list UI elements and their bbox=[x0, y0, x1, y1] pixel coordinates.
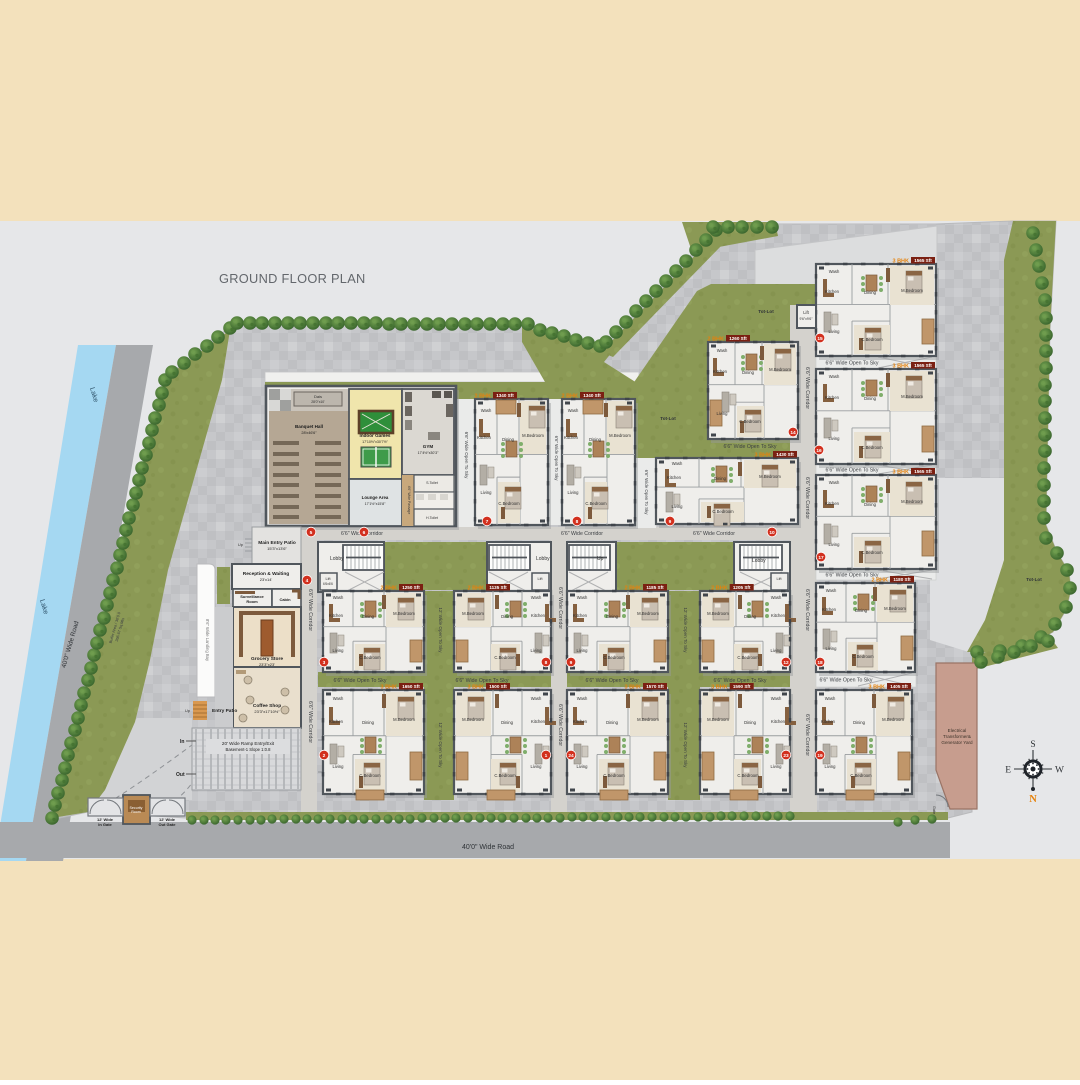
svg-text:Dining: Dining bbox=[864, 290, 877, 295]
svg-text:Living: Living bbox=[333, 648, 345, 653]
svg-text:Kitchen: Kitchen bbox=[667, 475, 682, 480]
svg-text:Living: Living bbox=[771, 648, 783, 653]
svg-text:Kitchen: Kitchen bbox=[821, 719, 836, 724]
svg-text:Dining: Dining bbox=[855, 608, 868, 613]
svg-text:1185 Sft: 1185 Sft bbox=[646, 585, 664, 590]
svg-text:Wash: Wash bbox=[672, 461, 683, 466]
svg-text:C.Bedroom: C.Bedroom bbox=[737, 773, 759, 778]
svg-text:6'6" Wide Open To Sky: 6'6" Wide Open To Sky bbox=[826, 361, 879, 367]
svg-text:C.Bedroom: C.Bedroom bbox=[850, 773, 872, 778]
svg-text:1340 Sft: 1340 Sft bbox=[496, 393, 514, 398]
svg-text:4: 4 bbox=[306, 578, 309, 584]
svg-text:6'6" Wide Corridor: 6'6" Wide Corridor bbox=[557, 704, 563, 746]
svg-text:1180 Sft: 1180 Sft bbox=[893, 577, 911, 582]
svg-text:M.Bedroom: M.Bedroom bbox=[609, 433, 631, 438]
svg-text:Kitchen: Kitchen bbox=[771, 719, 786, 724]
svg-text:3 BHK: 3 BHK bbox=[754, 453, 771, 459]
svg-text:Lounge Area: Lounge Area bbox=[362, 495, 389, 500]
svg-text:M.Bedroom: M.Bedroom bbox=[882, 717, 904, 722]
svg-text:S: S bbox=[1030, 740, 1035, 750]
svg-text:1565 Sft: 1565 Sft bbox=[914, 363, 932, 368]
svg-text:Kitchen: Kitchen bbox=[329, 719, 344, 724]
svg-text:6'6" Wide Open To Sky: 6'6" Wide Open To Sky bbox=[586, 678, 639, 684]
svg-text:Living: Living bbox=[829, 542, 841, 547]
svg-text:Kitchen: Kitchen bbox=[771, 613, 786, 618]
svg-text:Kitchen: Kitchen bbox=[825, 501, 840, 506]
svg-text:1590 Sft: 1590 Sft bbox=[733, 684, 751, 689]
svg-text:Kitchen: Kitchen bbox=[531, 613, 546, 618]
svg-text:Dining: Dining bbox=[589, 437, 602, 442]
svg-text:Dining: Dining bbox=[864, 396, 877, 401]
svg-text:Living: Living bbox=[568, 490, 580, 495]
svg-text:Kitchen: Kitchen bbox=[477, 435, 492, 440]
svg-text:S.Toilet: S.Toilet bbox=[426, 481, 438, 485]
svg-text:Living: Living bbox=[829, 436, 841, 441]
svg-text:Wash: Wash bbox=[771, 595, 782, 600]
svg-text:1570 Sft: 1570 Sft bbox=[646, 684, 664, 689]
svg-text:Banquet Hall: Banquet Hall bbox=[295, 424, 323, 429]
svg-text:8: 8 bbox=[545, 660, 548, 666]
svg-text:Lift: Lift bbox=[803, 310, 809, 315]
svg-text:Tot-Lot: Tot-Lot bbox=[1026, 577, 1042, 582]
svg-text:6'6" Wide Open To Sky: 6'6" Wide Open To Sky bbox=[464, 432, 469, 480]
svg-text:15'3"x13'6": 15'3"x13'6" bbox=[267, 546, 287, 551]
svg-text:M.Bedroom: M.Bedroom bbox=[901, 288, 923, 293]
svg-text:Kitchen: Kitchen bbox=[564, 435, 579, 440]
svg-text:18: 18 bbox=[817, 660, 823, 666]
svg-text:Kitchen: Kitchen bbox=[825, 289, 840, 294]
svg-text:In Gate: In Gate bbox=[98, 822, 112, 827]
svg-text:Generator Yard: Generator Yard bbox=[941, 740, 973, 745]
svg-text:Entry Patio: Entry Patio bbox=[212, 708, 237, 714]
svg-text:6'6x6'6: 6'6x6'6 bbox=[323, 582, 333, 586]
svg-text:M.Bedroom: M.Bedroom bbox=[393, 611, 415, 616]
svg-text:Up: Up bbox=[238, 542, 244, 547]
svg-text:Indoor Games: Indoor Games bbox=[360, 433, 391, 438]
svg-text:8: 8 bbox=[576, 519, 579, 525]
svg-text:C.Bedroom: C.Bedroom bbox=[494, 773, 516, 778]
svg-text:Kitchen: Kitchen bbox=[329, 613, 344, 618]
svg-text:3 BHK: 3 BHK bbox=[380, 685, 397, 691]
svg-text:1650 Sft: 1650 Sft bbox=[402, 684, 420, 689]
svg-text:1405 Sft: 1405 Sft bbox=[890, 684, 908, 689]
svg-text:3 BHK: 3 BHK bbox=[868, 685, 885, 691]
svg-text:Living: Living bbox=[672, 504, 684, 509]
svg-text:M.Bedroom: M.Bedroom bbox=[769, 367, 791, 372]
svg-text:2 BHK: 2 BHK bbox=[467, 586, 484, 592]
svg-text:3 BHK: 3 BHK bbox=[892, 259, 909, 265]
svg-text:6'6" Wide Corridor: 6'6" Wide Corridor bbox=[804, 477, 810, 519]
svg-text:Kitchen: Kitchen bbox=[573, 613, 588, 618]
svg-text:Cabin: Cabin bbox=[279, 597, 291, 602]
svg-text:6'6" Wide Open To Sky: 6'6" Wide Open To Sky bbox=[724, 444, 777, 450]
svg-text:C.Bedroom: C.Bedroom bbox=[494, 655, 516, 660]
svg-text:Living: Living bbox=[481, 490, 493, 495]
svg-text:12' Wide Open To Sky: 12' Wide Open To Sky bbox=[438, 607, 443, 653]
svg-text:Out Gate: Out Gate bbox=[159, 822, 177, 827]
svg-text:Dining: Dining bbox=[606, 720, 619, 725]
svg-text:C.Bedroom: C.Bedroom bbox=[861, 550, 883, 555]
svg-text:17'4½"x30'3": 17'4½"x30'3" bbox=[418, 451, 439, 455]
svg-text:Kitchen: Kitchen bbox=[573, 719, 588, 724]
svg-text:Transformer&: Transformer& bbox=[943, 734, 971, 739]
svg-text:23'3"x17'10½": 23'3"x17'10½" bbox=[254, 709, 280, 714]
svg-text:M.Bedroom: M.Bedroom bbox=[707, 611, 729, 616]
svg-text:1430 Sft: 1430 Sft bbox=[776, 452, 794, 457]
svg-text:14: 14 bbox=[790, 430, 796, 436]
svg-text:Dining: Dining bbox=[362, 720, 375, 725]
svg-text:16: 16 bbox=[816, 448, 822, 454]
svg-text:C.Bedroom: C.Bedroom bbox=[737, 655, 759, 660]
svg-text:Wash: Wash bbox=[577, 696, 588, 701]
svg-text:20' Wide Ramp Entry/Exit: 20' Wide Ramp Entry/Exit bbox=[222, 741, 275, 746]
svg-text:GROUND FLOOR PLAN: GROUND FLOOR PLAN bbox=[219, 271, 366, 286]
svg-text:Dining: Dining bbox=[742, 370, 755, 375]
svg-text:C.Bedroom: C.Bedroom bbox=[359, 655, 381, 660]
svg-text:8'6" Wide Landing Bay: 8'6" Wide Landing Bay bbox=[205, 619, 210, 662]
svg-text:1260 Sft: 1260 Sft bbox=[729, 336, 747, 341]
svg-text:Living: Living bbox=[577, 764, 589, 769]
svg-text:3: 3 bbox=[323, 660, 326, 666]
svg-text:Dining: Dining bbox=[501, 614, 514, 619]
svg-text:Up: Up bbox=[597, 556, 604, 562]
svg-text:Living: Living bbox=[825, 764, 837, 769]
svg-text:Dining: Dining bbox=[502, 437, 515, 442]
svg-text:M.Bedroom: M.Bedroom bbox=[901, 499, 923, 504]
svg-text:12' Wide Open To Sky: 12' Wide Open To Sky bbox=[683, 722, 688, 768]
svg-text:6'6" Wide Corridor: 6'6" Wide Corridor bbox=[804, 714, 810, 756]
svg-text:Dining: Dining bbox=[501, 720, 514, 725]
svg-text:6'6" Wide Corridor: 6'6" Wide Corridor bbox=[557, 587, 563, 629]
svg-text:Dining: Dining bbox=[714, 476, 727, 481]
svg-text:M.Bedroom: M.Bedroom bbox=[759, 474, 781, 479]
svg-text:Gate: Gate bbox=[932, 806, 936, 814]
svg-text:N: N bbox=[1029, 794, 1037, 805]
svg-text:Lobby: Lobby bbox=[330, 556, 344, 562]
svg-text:Room: Room bbox=[246, 599, 258, 604]
svg-text:2 BHK: 2 BHK bbox=[380, 586, 397, 592]
svg-text:In: In bbox=[180, 739, 184, 745]
svg-text:W: W bbox=[1055, 766, 1064, 776]
svg-text:C.Bedroom: C.Bedroom bbox=[585, 501, 607, 506]
svg-text:Basement-1 Slope 1:0.8: Basement-1 Slope 1:0.8 bbox=[226, 747, 272, 752]
svg-text:Dining: Dining bbox=[864, 502, 877, 507]
svg-text:M.Bedroom: M.Bedroom bbox=[637, 611, 659, 616]
svg-text:2 BHK: 2 BHK bbox=[561, 394, 578, 400]
svg-text:15: 15 bbox=[817, 336, 823, 342]
svg-text:GYM: GYM bbox=[423, 444, 434, 449]
svg-text:2 BHK: 2 BHK bbox=[711, 586, 728, 592]
svg-text:Dining: Dining bbox=[362, 614, 375, 619]
svg-text:Wash: Wash bbox=[531, 696, 542, 701]
svg-text:1205 Sft: 1205 Sft bbox=[733, 585, 751, 590]
svg-text:6'6" Wide Corridor: 6'6" Wide Corridor bbox=[307, 589, 313, 631]
svg-text:Kitchen: Kitchen bbox=[822, 607, 837, 612]
svg-text:10: 10 bbox=[769, 530, 775, 536]
svg-text:2 BHK: 2 BHK bbox=[871, 578, 888, 584]
svg-text:Dining: Dining bbox=[853, 720, 866, 725]
svg-text:C.Bedroom: C.Bedroom bbox=[861, 337, 883, 342]
svg-text:M.Bedroom: M.Bedroom bbox=[462, 611, 484, 616]
svg-text:M.Bedroom: M.Bedroom bbox=[901, 394, 923, 399]
svg-text:28'x46'6": 28'x46'6" bbox=[301, 431, 317, 435]
svg-text:Dining: Dining bbox=[744, 614, 757, 619]
svg-text:Electrical: Electrical bbox=[948, 728, 967, 733]
svg-text:Kitchen: Kitchen bbox=[531, 719, 546, 724]
svg-text:1565 Sft: 1565 Sft bbox=[914, 469, 932, 474]
svg-text:Wash: Wash bbox=[829, 374, 840, 379]
svg-text:Tot-Lot: Tot-Lot bbox=[758, 309, 774, 314]
svg-text:Wash: Wash bbox=[826, 588, 837, 593]
svg-text:Living: Living bbox=[771, 764, 783, 769]
svg-text:12: 12 bbox=[783, 660, 789, 666]
svg-text:Up: Up bbox=[185, 708, 191, 713]
svg-text:Room: Room bbox=[131, 810, 141, 814]
svg-text:Dining: Dining bbox=[744, 720, 757, 725]
svg-text:24: 24 bbox=[568, 753, 574, 759]
svg-text:Tot-Lot: Tot-Lot bbox=[660, 416, 676, 421]
svg-text:Wash: Wash bbox=[333, 696, 344, 701]
svg-text:Living: Living bbox=[577, 648, 589, 653]
svg-text:12' Wide Open To Sky: 12' Wide Open To Sky bbox=[438, 722, 443, 768]
svg-text:C.Bedroom: C.Bedroom bbox=[861, 445, 883, 450]
svg-text:Wash: Wash bbox=[577, 595, 588, 600]
svg-text:6'6" Wide Corridor: 6'6" Wide Corridor bbox=[561, 531, 603, 537]
svg-text:6'6" Wide Corridor: 6'6" Wide Corridor bbox=[804, 367, 810, 409]
svg-text:3 BHK: 3 BHK bbox=[892, 470, 909, 476]
svg-text:19: 19 bbox=[817, 753, 823, 759]
svg-text:Living: Living bbox=[531, 648, 543, 653]
svg-text:6'6" Wide Open To Sky: 6'6" Wide Open To Sky bbox=[554, 436, 559, 482]
svg-text:Kitchen: Kitchen bbox=[713, 369, 728, 374]
svg-text:6'6" Wide Open To Sky: 6'6" Wide Open To Sky bbox=[644, 470, 649, 516]
svg-text:17: 17 bbox=[818, 555, 824, 561]
svg-text:9: 9 bbox=[669, 519, 672, 525]
svg-text:C.Bedroom: C.Bedroom bbox=[739, 419, 761, 424]
svg-text:6'6" Wide Corridor: 6'6" Wide Corridor bbox=[693, 531, 735, 537]
svg-text:M.Bedroom: M.Bedroom bbox=[884, 606, 906, 611]
svg-text:Dining: Dining bbox=[606, 614, 619, 619]
svg-text:Wash: Wash bbox=[829, 269, 840, 274]
svg-text:Living: Living bbox=[531, 764, 543, 769]
svg-text:3 BHK: 3 BHK bbox=[467, 685, 484, 691]
svg-text:23: 23 bbox=[783, 753, 789, 759]
svg-text:M.Bedroom: M.Bedroom bbox=[522, 433, 544, 438]
svg-text:1: 1 bbox=[545, 753, 548, 759]
svg-text:Living: Living bbox=[826, 646, 838, 651]
svg-text:C.Bedroom: C.Bedroom bbox=[359, 773, 381, 778]
svg-text:6: 6 bbox=[363, 530, 366, 536]
svg-text:12' Wide Open To Sky: 12' Wide Open To Sky bbox=[683, 607, 688, 653]
svg-text:Living: Living bbox=[717, 411, 729, 416]
svg-text:23'x14': 23'x14' bbox=[260, 577, 273, 582]
svg-text:Living: Living bbox=[333, 764, 345, 769]
svg-text:Out: Out bbox=[176, 772, 185, 778]
svg-text:M.Bedroom: M.Bedroom bbox=[462, 717, 484, 722]
svg-text:2 BHK: 2 BHK bbox=[474, 394, 491, 400]
svg-text:1340 Sft: 1340 Sft bbox=[583, 393, 601, 398]
svg-text:Lobby: Lobby bbox=[536, 556, 550, 562]
svg-text:5: 5 bbox=[310, 530, 313, 536]
svg-text:Wash: Wash bbox=[825, 696, 836, 701]
svg-text:4'6" Wide Passage: 4'6" Wide Passage bbox=[407, 486, 411, 515]
svg-text:M.Bedroom: M.Bedroom bbox=[637, 717, 659, 722]
svg-text:3 BHK: 3 BHK bbox=[624, 685, 641, 691]
svg-text:40'0" Wide Road: 40'0" Wide Road bbox=[462, 844, 514, 851]
svg-text:C.Bedroom: C.Bedroom bbox=[603, 655, 625, 660]
svg-text:1500 Sft: 1500 Sft bbox=[489, 684, 507, 689]
svg-text:1565 Sft: 1565 Sft bbox=[914, 258, 932, 263]
svg-text:Lobby: Lobby bbox=[752, 558, 766, 564]
svg-text:Living: Living bbox=[829, 329, 841, 334]
svg-text:6'6" Wide Open To Sky: 6'6" Wide Open To Sky bbox=[334, 678, 387, 684]
svg-text:Wash: Wash bbox=[481, 408, 492, 413]
svg-text:C.Bedroom: C.Bedroom bbox=[712, 509, 734, 514]
svg-text:C.Bedroom: C.Bedroom bbox=[852, 654, 874, 659]
svg-text:E: E bbox=[1005, 766, 1011, 776]
svg-text:Wash: Wash bbox=[771, 696, 782, 701]
svg-text:C.Bedroom: C.Bedroom bbox=[498, 501, 520, 506]
svg-text:6'6" Wide Open To Sky: 6'6" Wide Open To Sky bbox=[820, 678, 873, 684]
svg-text:17'10½"x30'7½": 17'10½"x30'7½" bbox=[362, 440, 388, 444]
svg-text:Dais: Dais bbox=[314, 394, 322, 399]
svg-text:Kitchen: Kitchen bbox=[825, 395, 840, 400]
svg-text:M.Bedroom: M.Bedroom bbox=[707, 717, 729, 722]
svg-text:1135 Sft: 1135 Sft bbox=[489, 585, 507, 590]
svg-text:Wash: Wash bbox=[829, 480, 840, 485]
svg-text:2 BHK: 2 BHK bbox=[707, 337, 724, 343]
svg-text:Wash: Wash bbox=[568, 408, 579, 413]
svg-text:Wash: Wash bbox=[333, 595, 344, 600]
svg-text:3 BHK: 3 BHK bbox=[892, 364, 909, 370]
svg-text:Wash: Wash bbox=[531, 595, 542, 600]
svg-text:6'6" Wide Open To Sky: 6'6" Wide Open To Sky bbox=[826, 468, 879, 474]
svg-text:7: 7 bbox=[486, 519, 489, 525]
svg-text:C.Bedroom: C.Bedroom bbox=[603, 773, 625, 778]
svg-text:3 BHK: 3 BHK bbox=[711, 685, 728, 691]
svg-text:17'1½"x15'8": 17'1½"x15'8" bbox=[365, 502, 386, 506]
svg-text:2: 2 bbox=[323, 753, 326, 759]
svg-text:6'6" Wide Corridor: 6'6" Wide Corridor bbox=[804, 589, 810, 631]
svg-text:M.Bedroom: M.Bedroom bbox=[393, 717, 415, 722]
svg-text:6'6" Wide Corridor: 6'6" Wide Corridor bbox=[307, 701, 313, 743]
svg-text:2 BHK: 2 BHK bbox=[624, 586, 641, 592]
svg-text:Wash: Wash bbox=[717, 348, 728, 353]
svg-text:9: 9 bbox=[570, 660, 573, 666]
svg-text:9'6"x9'6": 9'6"x9'6" bbox=[800, 317, 814, 321]
svg-text:1250 Sft: 1250 Sft bbox=[402, 585, 420, 590]
svg-text:H.Toilet: H.Toilet bbox=[426, 516, 438, 520]
svg-text:28'0"x10': 28'0"x10' bbox=[311, 400, 325, 404]
